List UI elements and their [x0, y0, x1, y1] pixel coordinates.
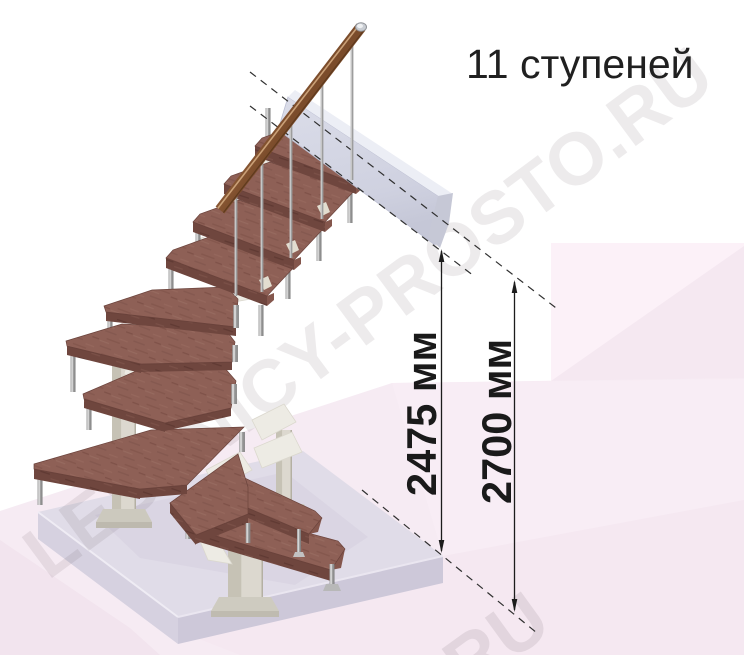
svg-text:2475 мм: 2475 мм — [398, 331, 445, 496]
svg-text:11 ступеней: 11 ступеней — [466, 41, 694, 87]
svg-text:2700 мм: 2700 мм — [473, 339, 520, 504]
